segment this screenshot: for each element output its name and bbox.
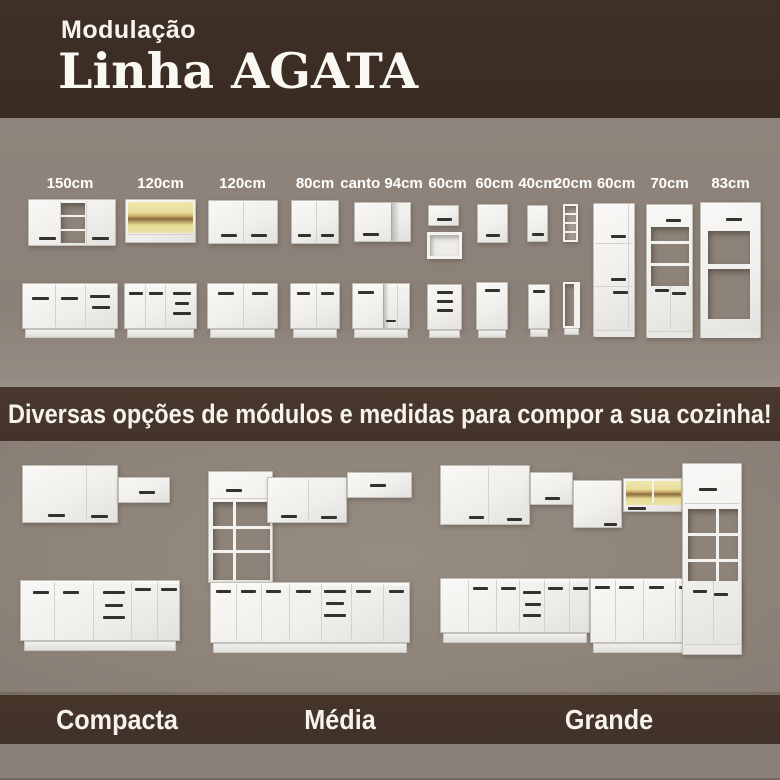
corner-base-cabinet-graphic xyxy=(352,283,410,329)
base-cabinet-graphic xyxy=(207,283,278,329)
base-run-graphic xyxy=(210,582,410,643)
module-120cm-glass: 120cm xyxy=(124,118,197,387)
module-size-label: 83cm xyxy=(711,175,749,192)
module-size-label: canto 94cm xyxy=(340,175,423,192)
wall-cabinet-graphic xyxy=(28,199,116,246)
tall-tower-graphic xyxy=(682,463,742,655)
corner-wall-cabinet-graphic xyxy=(573,480,622,528)
module-150cm: 150cm xyxy=(22,118,118,387)
kitchens-section xyxy=(0,441,780,695)
open-box-graphic xyxy=(427,232,462,259)
module-size-label: 60cm xyxy=(597,175,635,192)
tall-cabinet-graphic xyxy=(593,203,635,337)
module-size-label: 120cm xyxy=(137,175,184,192)
wall-cabinet-graphic xyxy=(208,200,278,244)
module-size-label: 60cm xyxy=(475,175,513,192)
module-size-label: 60cm xyxy=(428,175,466,192)
module-120cm: 120cm xyxy=(207,118,278,387)
module-80cm: 80cm xyxy=(290,118,340,387)
modules-section: 150cm 120cm xyxy=(0,118,780,387)
module-canto-94cm: canto 94cm xyxy=(352,118,411,387)
page-title: Linha AGATA xyxy=(58,42,418,100)
base-cabinet-graphic xyxy=(528,284,550,329)
kitchen-labels-band: Compacta Média Grande xyxy=(0,695,780,744)
flip-wall-cabinet-graphic xyxy=(428,205,459,226)
header-subtitle: Modulação xyxy=(61,16,196,45)
base-run-graphic xyxy=(440,578,590,633)
corner-wall-cabinet-graphic xyxy=(354,202,411,242)
module-20cm-niche: 20cm xyxy=(563,118,583,387)
wall-cabinet-graphic xyxy=(347,472,412,498)
plinth xyxy=(564,328,579,335)
niche-tower-graphic xyxy=(563,204,578,242)
plinth xyxy=(25,329,115,338)
kitchen-label-media: Média xyxy=(304,695,375,744)
wall-cabinet-graphic xyxy=(267,477,347,523)
wall-cabinet-graphic xyxy=(440,465,530,525)
tall-tower-graphic xyxy=(208,471,273,583)
module-size-label: 20cm xyxy=(554,175,592,192)
wall-cabinet-graphic xyxy=(118,477,170,503)
module-40cm: 40cm xyxy=(523,118,552,387)
kitchen-media xyxy=(205,450,415,670)
wall-cabinet-graphic xyxy=(527,205,548,242)
plinth xyxy=(127,329,194,338)
wall-cabinet-graphic xyxy=(530,472,573,505)
header: Modulação Linha AGATA xyxy=(0,0,780,118)
base-cabinet-graphic xyxy=(476,282,508,330)
tall-open-cabinet-graphic xyxy=(646,204,693,338)
plinth xyxy=(443,633,587,643)
tagline-text: Diversas opções de módulos e medidas par… xyxy=(8,399,772,430)
module-60cm-tall: 60cm xyxy=(593,118,639,387)
drawer-base-graphic xyxy=(427,284,462,330)
module-70cm-tall: 70cm xyxy=(646,118,693,387)
tall-appliance-surround-graphic xyxy=(700,202,761,338)
module-size-label: 40cm xyxy=(518,175,556,192)
base-run-graphic xyxy=(20,580,180,641)
base-cabinet-graphic xyxy=(290,283,340,329)
plinth xyxy=(24,641,176,651)
module-size-label: 70cm xyxy=(650,175,688,192)
plinth xyxy=(210,329,275,338)
wall-cabinet-graphic xyxy=(477,204,508,243)
glass-wall-cabinet-graphic xyxy=(623,478,682,512)
plinth xyxy=(429,330,460,338)
product-infographic: Modulação Linha AGATA 150cm xyxy=(0,0,780,780)
base-cabinet-graphic xyxy=(22,283,118,329)
plinth xyxy=(213,643,407,653)
base-cabinet-graphic xyxy=(124,283,197,329)
kitchen-grande xyxy=(433,450,768,670)
module-size-label: 120cm xyxy=(219,175,266,192)
module-60cm-flip: 60cm xyxy=(427,118,468,387)
module-size-label: 150cm xyxy=(47,175,94,192)
plinth xyxy=(354,329,408,338)
plinth xyxy=(530,329,548,337)
module-60cm-wall: 60cm xyxy=(476,118,513,387)
plinth xyxy=(293,329,337,338)
tagline-band: Diversas opções de módulos e medidas par… xyxy=(0,387,780,441)
module-83cm-tall: 83cm xyxy=(700,118,761,387)
kitchen-label-compacta: Compacta xyxy=(56,695,178,744)
wall-cabinet-graphic xyxy=(291,200,339,244)
kitchen-label-grande: Grande xyxy=(565,695,653,744)
glass-wall-cabinet-graphic xyxy=(125,199,196,243)
module-size-label: 80cm xyxy=(296,175,334,192)
footer-strip xyxy=(0,744,780,780)
wall-cabinet-graphic xyxy=(22,465,118,523)
kitchen-compacta xyxy=(18,455,188,670)
niche-base-graphic xyxy=(563,282,580,328)
plinth xyxy=(478,330,506,338)
